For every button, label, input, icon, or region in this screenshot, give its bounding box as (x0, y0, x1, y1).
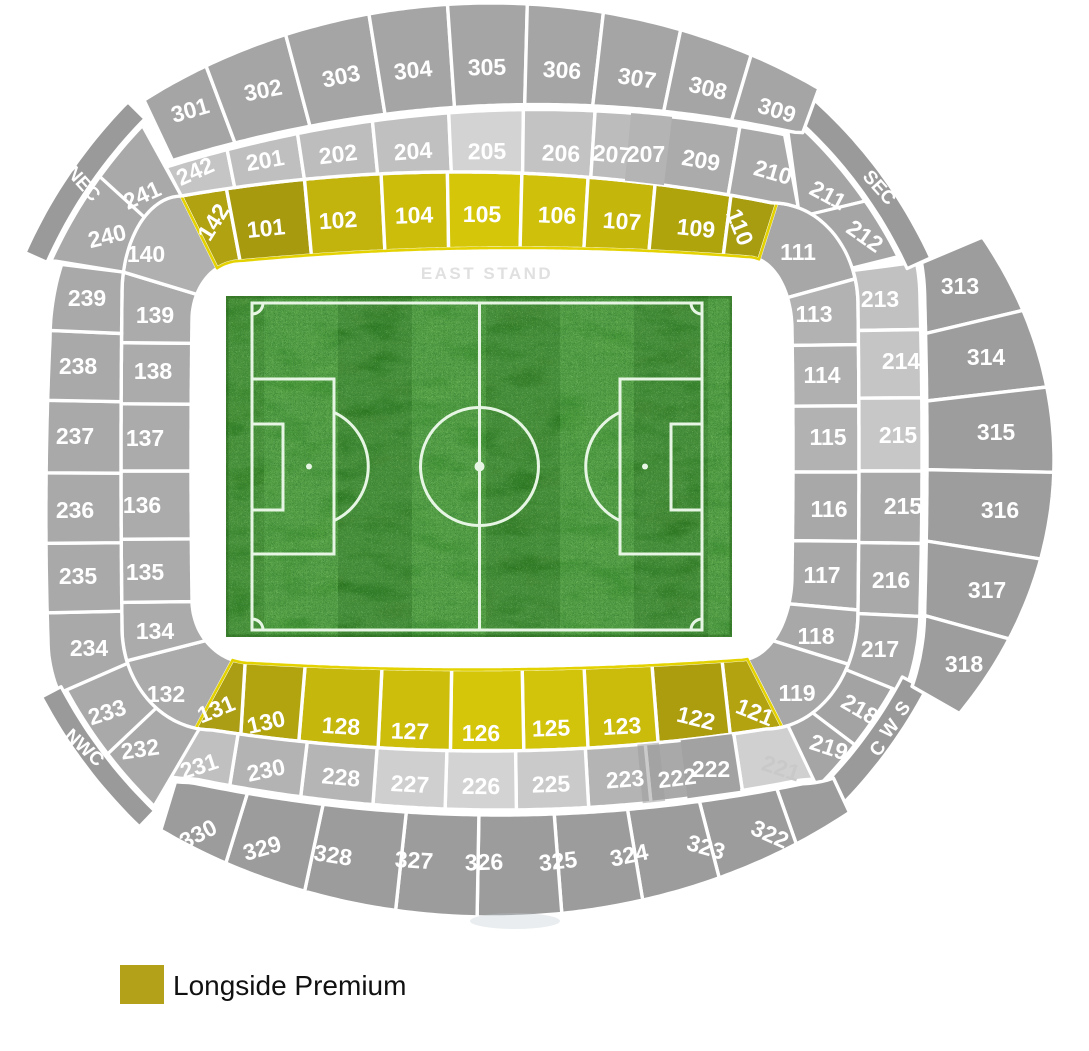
svg-text:119: 119 (778, 680, 815, 706)
svg-text:327: 327 (394, 846, 434, 874)
svg-text:313: 313 (941, 273, 979, 299)
svg-text:127: 127 (390, 717, 429, 744)
svg-text:223: 223 (605, 765, 645, 794)
svg-text:140: 140 (127, 241, 165, 267)
svg-text:226: 226 (462, 773, 501, 799)
svg-text:236: 236 (56, 497, 94, 523)
svg-text:315: 315 (977, 419, 1016, 445)
svg-text:318: 318 (945, 651, 984, 677)
svg-text:238: 238 (59, 353, 98, 379)
svg-text:126: 126 (462, 720, 500, 746)
svg-text:215: 215 (879, 422, 918, 448)
svg-text:102: 102 (318, 206, 358, 234)
svg-text:113: 113 (795, 301, 832, 327)
svg-text:132: 132 (147, 681, 185, 707)
svg-text:239: 239 (68, 285, 106, 311)
svg-text:107: 107 (602, 207, 642, 236)
svg-text:118: 118 (797, 623, 834, 649)
svg-text:116: 116 (810, 496, 847, 522)
svg-text:101: 101 (246, 213, 287, 243)
svg-text:222: 222 (692, 756, 730, 782)
svg-text:125: 125 (531, 714, 570, 741)
svg-text:204: 204 (393, 137, 433, 166)
svg-text:105: 105 (463, 201, 502, 227)
svg-text:137: 137 (126, 425, 164, 451)
svg-text:227: 227 (390, 770, 430, 798)
svg-text:232: 232 (119, 733, 161, 764)
svg-text:213: 213 (861, 286, 899, 312)
svg-text:316: 316 (981, 497, 1019, 523)
svg-text:314: 314 (967, 344, 1006, 370)
svg-text:123: 123 (602, 712, 642, 740)
svg-text:217: 217 (861, 636, 899, 662)
svg-text:117: 117 (803, 562, 840, 588)
svg-text:326: 326 (464, 848, 503, 875)
svg-text:304: 304 (393, 55, 434, 85)
svg-text:114: 114 (803, 362, 840, 388)
svg-text:106: 106 (537, 201, 576, 228)
svg-text:205: 205 (468, 138, 507, 165)
svg-text:317: 317 (968, 577, 1006, 603)
svg-text:207: 207 (627, 141, 665, 167)
svg-text:128: 128 (321, 712, 361, 740)
svg-text:235: 235 (59, 563, 98, 589)
svg-text:134: 134 (136, 618, 175, 644)
svg-text:111: 111 (780, 239, 816, 265)
svg-text:EAST STAND: EAST STAND (421, 264, 553, 283)
svg-text:215: 215 (884, 493, 923, 519)
svg-text:228: 228 (321, 762, 362, 792)
svg-text:109: 109 (676, 213, 717, 243)
svg-text:216: 216 (872, 567, 910, 593)
svg-text:234: 234 (70, 635, 109, 661)
svg-text:138: 138 (134, 358, 173, 384)
svg-text:237: 237 (56, 423, 94, 449)
svg-text:Longside Premium: Longside Premium (173, 970, 406, 1001)
svg-text:136: 136 (123, 492, 161, 518)
svg-text:206: 206 (541, 139, 580, 166)
svg-text:115: 115 (809, 424, 846, 450)
svg-text:139: 139 (136, 302, 174, 328)
svg-text:306: 306 (542, 56, 582, 84)
svg-text:214: 214 (882, 348, 921, 374)
svg-text:325: 325 (537, 846, 578, 876)
svg-text:225: 225 (531, 770, 570, 797)
svg-text:104: 104 (394, 201, 433, 228)
svg-text:135: 135 (126, 559, 165, 585)
svg-text:202: 202 (317, 139, 358, 169)
svg-text:305: 305 (468, 54, 507, 81)
